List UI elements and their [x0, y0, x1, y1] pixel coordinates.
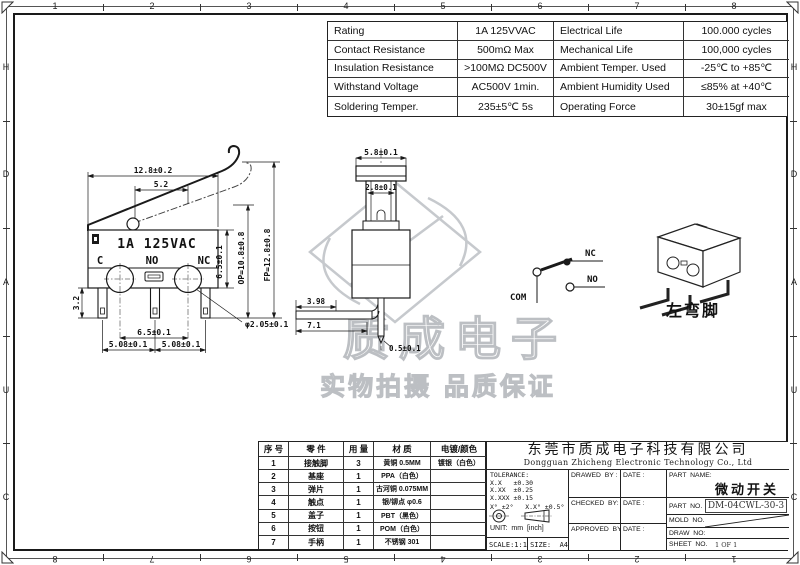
bom-cell: 4 — [259, 496, 289, 509]
grid-number-bottom: 4 — [423, 553, 463, 565]
projection-symbol — [487, 508, 568, 524]
grid-number-top: 7 — [617, 0, 657, 12]
mold-no-label: MOLD NO. — [669, 517, 705, 524]
grid-tick — [200, 554, 201, 561]
tolerance-row: X.XXX ±0.15 — [490, 495, 568, 503]
grid-tick — [790, 443, 797, 444]
spec-label: Electrical Life — [554, 22, 684, 41]
bom-cell: 基座 — [289, 470, 344, 483]
grid-tick — [790, 228, 797, 229]
company-name-cn: 东莞市质成电子科技有限公司 — [487, 442, 789, 458]
spec-label: Operating Force — [554, 97, 684, 116]
bom-header: 材 质 — [374, 442, 431, 457]
grid-number-bottom: 6 — [229, 553, 269, 565]
spec-value: 100.000 cycles — [684, 22, 789, 41]
bom-cell — [431, 470, 487, 483]
grid-number-bottom: 2 — [617, 553, 657, 565]
grid-letter-right: C — [788, 491, 800, 503]
spec-value: 1A 125VVAC — [458, 22, 554, 41]
grid-number-bottom: 1 — [714, 553, 754, 565]
bom-cell: 1 — [259, 457, 289, 470]
date-cell: DATE : — [621, 470, 667, 498]
spec-label: Rating — [328, 22, 458, 41]
mold-no-diagonal — [705, 515, 789, 527]
drawing-canvas: 质成电子 实物拍摄 品质保证 — [13, 115, 788, 441]
bom-cell: 手柄 — [289, 536, 344, 549]
dim-front-pitch-left: 5.08±0.1 — [109, 340, 148, 349]
bom-cell: 1 — [344, 510, 374, 523]
bom-cell: 接触脚 — [289, 457, 344, 470]
dim-side-button: 2.8±0.1 — [365, 183, 397, 192]
spec-label: Withstand Voltage — [328, 78, 458, 97]
grid-letter-right: D — [788, 168, 800, 180]
checked-by-cell: CHECKED BY: — [569, 498, 621, 524]
bom-cell: 1 — [344, 496, 374, 509]
bom-cell — [431, 536, 487, 549]
approved-by-cell: APPROVED BY: — [569, 524, 621, 551]
spec-label: Contact Resistance — [328, 41, 458, 60]
spec-label: Ambient Humidity Used — [554, 78, 684, 97]
grid-tick — [103, 554, 104, 561]
circuit-com-label: COM — [510, 293, 527, 303]
grid-letter-left: H — [0, 61, 12, 73]
grid-tick — [491, 4, 492, 11]
bom-header: 用 量 — [344, 442, 374, 457]
bom-cell: 弹片 — [289, 483, 344, 496]
bom-cell: 银/铆点 φ0.6 — [374, 496, 431, 509]
bom-cell: PPA（白色） — [374, 470, 431, 483]
dim-side-tip: 0.5±0.1 — [389, 344, 421, 353]
corner-mark-tr — [786, 0, 800, 14]
dim-front-pitch-right: 5.08±0.1 — [162, 340, 201, 349]
grid-letter-left: D — [0, 168, 12, 180]
grid-tick — [394, 4, 395, 11]
bom-cell — [431, 510, 487, 523]
grid-tick — [3, 228, 10, 229]
signature-block: DRAWED BY : DATE : CHECKED BY: DATE : AP… — [569, 470, 667, 551]
size-label: SIZE: A4 — [528, 538, 568, 551]
spec-value: >100MΩ DC500V — [458, 60, 554, 79]
dim-front-span: 6.5±0.1 — [137, 328, 171, 337]
drawed-by-cell: DRAWED BY : — [569, 470, 621, 498]
bom-cell — [431, 483, 487, 496]
dim-front-lever: 5.2 — [154, 180, 169, 189]
grid-number-top: 1 — [35, 0, 75, 12]
bom-cell: 5 — [259, 510, 289, 523]
bom-cell: 3 — [259, 483, 289, 496]
part-info-block: PART NAME: 微动开关 PART NO. DM-04CWL-30-3 M… — [667, 470, 789, 551]
bom-cell: 黄铜 0.5MM — [374, 457, 431, 470]
bom-cell: 2 — [259, 470, 289, 483]
tolerance-block: TOLERANCE: X.X ±0.30 X.XX ±0.25 X.XXX ±0… — [487, 470, 569, 551]
company-name-en: Dongguan Zhicheng Electronic Technology … — [487, 458, 789, 468]
bom-cell: 3 — [344, 457, 374, 470]
bom-cell: 古河铜 0.075MM — [374, 483, 431, 496]
bom-cell: 7 — [259, 536, 289, 549]
bom-cell: 1 — [344, 483, 374, 496]
dim-side-width: 5.8±0.1 — [364, 148, 398, 157]
date-cell: DATE : — [621, 524, 667, 551]
bom-cell: 1 — [344, 536, 374, 549]
draw-no-label: DRAW NO: — [669, 530, 705, 537]
grid-number-top: 4 — [326, 0, 366, 12]
grid-letter-left: U — [0, 384, 12, 396]
sheet-no-value: 1 OF 1 — [715, 541, 737, 549]
bom-cell: 盖子 — [289, 510, 344, 523]
terminal-nc-label: NC — [198, 255, 211, 267]
terminal-no-label: NO — [146, 255, 159, 267]
grid-tick — [790, 121, 797, 122]
grid-tick — [685, 554, 686, 561]
grid-tick — [491, 554, 492, 561]
part-no-value: DM-04CWL-30-3 — [705, 499, 787, 513]
dim-front-op: OP=10.8±0.8 — [237, 231, 246, 284]
dim-front-hole: φ2.05±0.1 — [245, 320, 289, 329]
bom-cell: 镀银（白色） — [431, 457, 487, 470]
part-name-label: PART NAME: — [669, 472, 712, 479]
spec-value: 500mΩ Max — [458, 41, 554, 60]
grid-letter-left: C — [0, 491, 12, 503]
grid-tick — [3, 336, 10, 337]
corner-mark-bl — [0, 551, 14, 565]
bom-cell: 触点 — [289, 496, 344, 509]
bom-header: 零 件 — [289, 442, 344, 457]
grid-letter-left: A — [0, 276, 12, 288]
date-cell: DATE : — [621, 498, 667, 524]
bom-cell: 按钮 — [289, 523, 344, 536]
dim-side-a: 3.98 — [307, 297, 326, 306]
title-block: 东莞市质成电子科技有限公司 Dongguan Zhicheng Electron… — [486, 441, 788, 550]
grid-number-top: 3 — [229, 0, 269, 12]
bom-cell: 1 — [344, 523, 374, 536]
spec-label: Mechanical Life — [554, 41, 684, 60]
bom-cell: PBT（黑色） — [374, 510, 431, 523]
dim-front-fp: FP=12.8±0.8 — [263, 228, 272, 281]
bom-header: 电镀/颜色 — [431, 442, 487, 457]
grid-number-bottom: 8 — [35, 553, 75, 565]
dim-side-b: 7.1 — [307, 321, 321, 330]
spec-value: 30±15gf max — [684, 97, 789, 116]
bom-cell — [431, 523, 487, 536]
bom-header: 序 号 — [259, 442, 289, 457]
spec-value: 100,000 cycles — [684, 41, 789, 60]
grid-tick — [297, 4, 298, 11]
grid-tick — [394, 554, 395, 561]
spec-label: Insulation Resistance — [328, 60, 458, 79]
front-rating-text: 1A 125VAC — [117, 237, 196, 252]
iso-caption: 左弯脚 — [665, 301, 720, 320]
grid-tick — [297, 554, 298, 561]
watermark-brand: 质成电子 — [343, 312, 567, 366]
dim-front-body-height: 6.5±0.1 — [215, 245, 224, 279]
spec-value: AC500V 1min. — [458, 78, 554, 97]
grid-number-top: 6 — [520, 0, 560, 12]
grid-letter-right: H — [788, 61, 800, 73]
company-block: 东莞市质成电子科技有限公司 Dongguan Zhicheng Electron… — [487, 442, 789, 470]
corner-mark-tl — [0, 0, 14, 14]
bom-cell: POM（白色） — [374, 523, 431, 536]
spec-label: Ambient Temper. Used — [554, 60, 684, 79]
dim-front-pin-length: 3.2 — [72, 296, 81, 311]
terminal-c-label: C — [97, 255, 103, 267]
bom-table: 序 号 零 件 用 量 材 质 电镀/颜色 1 接触脚 3 黄铜 0.5MM 镀… — [258, 441, 486, 550]
grid-number-bottom: 7 — [132, 553, 172, 565]
grid-tick — [3, 121, 10, 122]
grid-number-top: 2 — [132, 0, 172, 12]
spec-value: -25℃ to +85℃ — [684, 60, 789, 79]
corner-mark-br — [786, 551, 800, 565]
grid-letter-right: A — [788, 276, 800, 288]
grid-number-top: 5 — [423, 0, 463, 12]
grid-tick — [588, 554, 589, 561]
dim-front-width: 12.8±0.2 — [134, 166, 173, 175]
grid-letter-right: U — [788, 384, 800, 396]
grid-tick — [3, 443, 10, 444]
spec-table: Rating 1A 125VVAC Electrical Life 100.00… — [327, 21, 788, 117]
unit-label: UNIT: mm [inch] — [490, 525, 544, 532]
spec-value: ≤85% at +40℃ — [684, 78, 789, 97]
grid-tick — [685, 4, 686, 11]
bom-cell: 不锈钢 301 — [374, 536, 431, 549]
grid-number-bottom: 3 — [520, 553, 560, 565]
grid-number-top: 8 — [714, 0, 754, 12]
grid-tick — [103, 4, 104, 11]
part-no-label: PART NO. — [669, 503, 702, 510]
circuit-nc-label: NC — [585, 249, 596, 259]
grid-tick — [790, 336, 797, 337]
datasheet-page: 1 2 3 4 5 6 7 8 8 7 6 5 4 3 2 1 H D A U … — [0, 0, 800, 565]
circuit-no-label: NO — [587, 275, 598, 285]
scale-label: SCALE:1:1 — [487, 538, 528, 551]
watermark-slogan: 实物拍摄 品质保证 — [320, 372, 556, 401]
part-name-value: 微动开关 — [715, 479, 779, 498]
bom-cell: 1 — [344, 470, 374, 483]
sheet-no-label: SHEET NO. — [669, 541, 707, 548]
grid-tick — [588, 4, 589, 11]
grid-tick — [200, 4, 201, 11]
spec-label: Soldering Temper. — [328, 97, 458, 116]
spec-value: 235±5℃ 5s — [458, 97, 554, 116]
bom-cell — [431, 496, 487, 509]
bom-cell: 6 — [259, 523, 289, 536]
grid-number-bottom: 5 — [326, 553, 366, 565]
